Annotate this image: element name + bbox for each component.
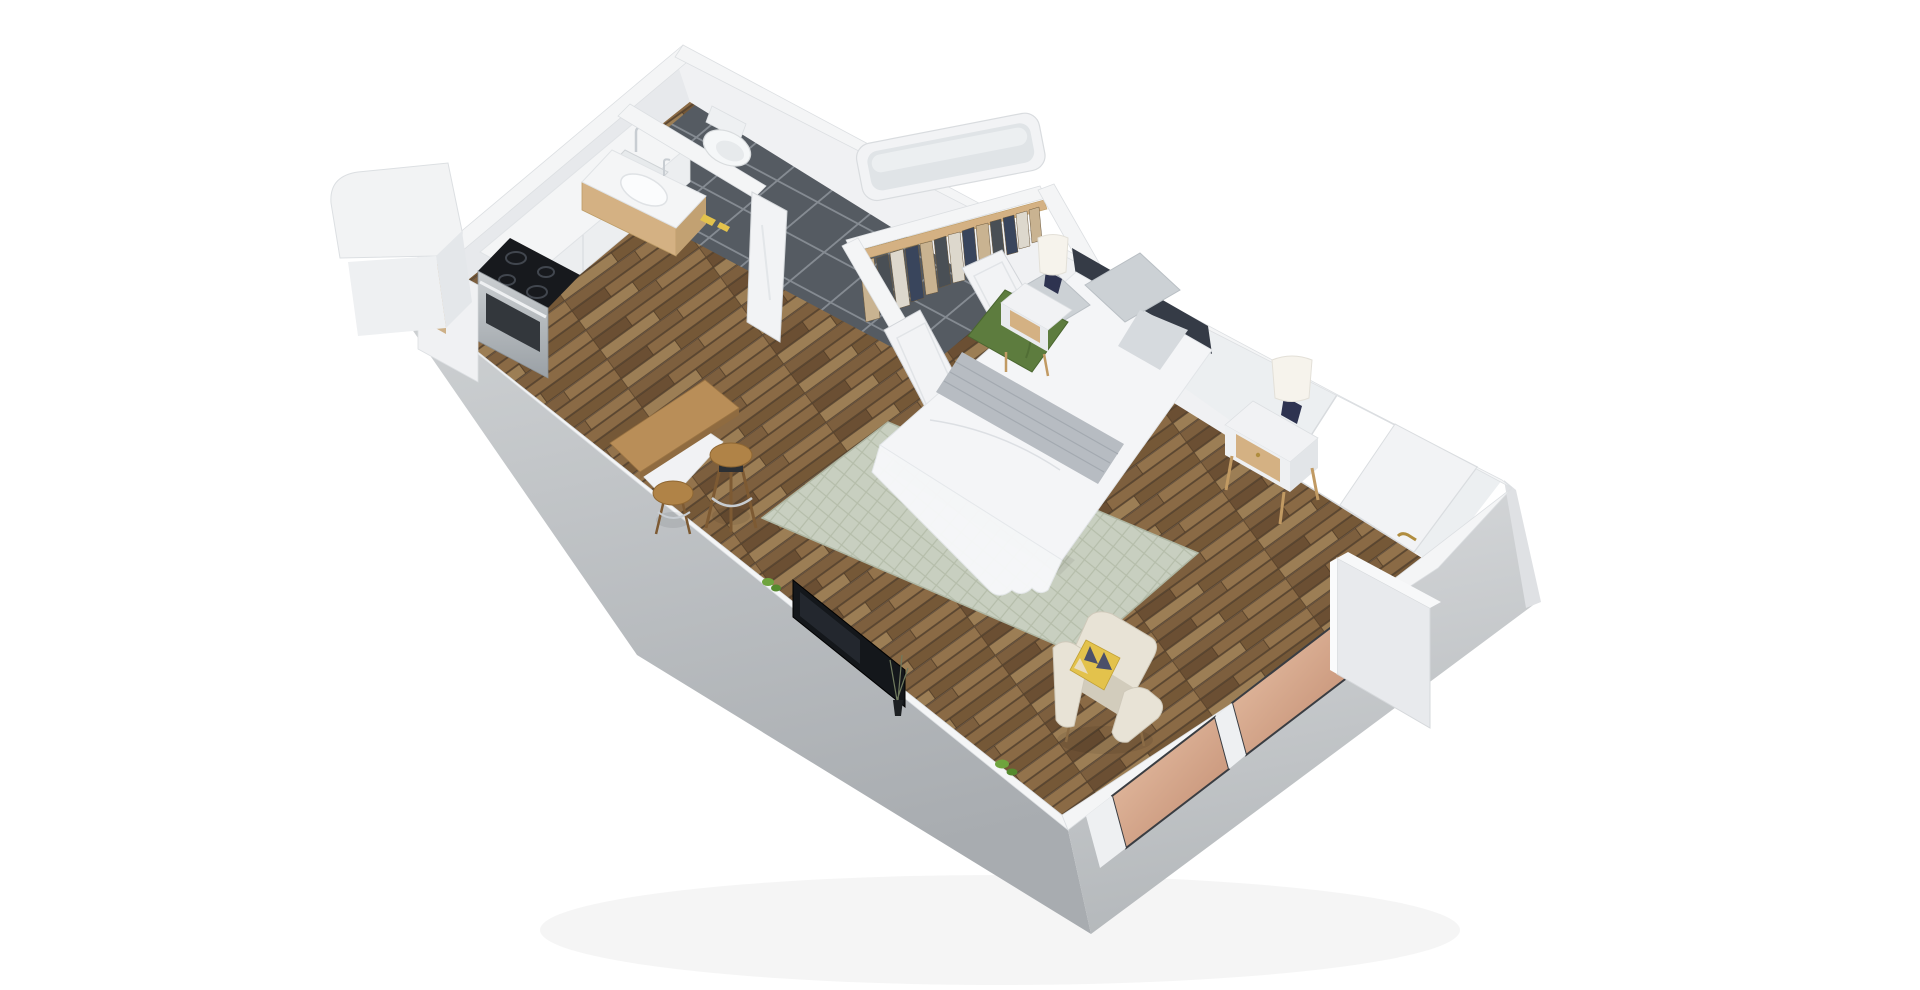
drawer-knob <box>1256 453 1260 457</box>
tall-cabinet-front <box>348 256 446 336</box>
floor-plan-scene <box>0 0 1920 990</box>
entry-door-leaf-edge <box>1330 558 1337 674</box>
ground-shadow <box>540 875 1460 985</box>
tall-cabinet-top <box>331 163 462 258</box>
lamp-left-shade <box>1038 235 1068 276</box>
lamp-right-shade <box>1272 356 1312 402</box>
floor-plan-page <box>0 0 1920 990</box>
